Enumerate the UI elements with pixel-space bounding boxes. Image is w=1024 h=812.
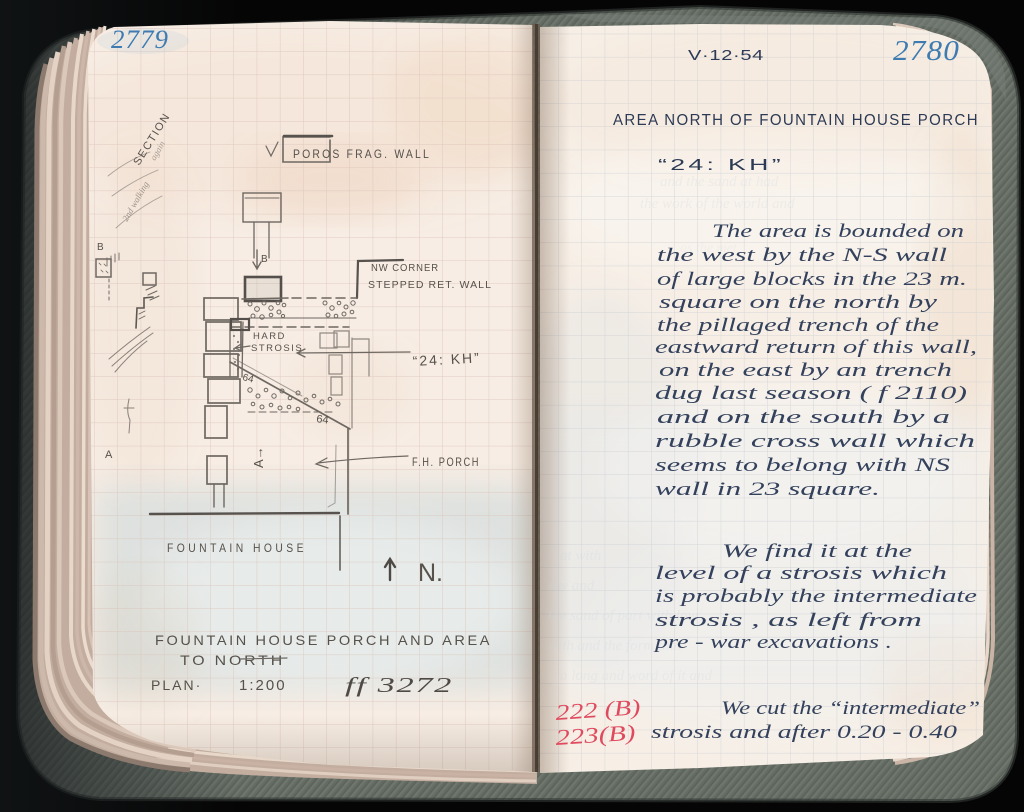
svg-text:AREA NORTH OF FOUNTAIN HOUSE P: AREA NORTH OF FOUNTAIN HOUSE PORCH [613,112,979,129]
svg-text:64: 64 [316,413,330,427]
svg-text:on the east by an trench: on the east by an trench [659,360,952,381]
svg-text:the west by the N-S wall: the west by the N-S wall [657,245,947,266]
svg-text:We find it at the: We find it at the [722,541,912,562]
svg-text:V·12·54: V·12·54 [688,47,764,64]
svg-text:“24: KH”: “24: KH” [658,157,784,174]
svg-text:A→: A→ [251,446,266,468]
svg-text:PLAN·: PLAN· [151,677,202,693]
svg-text:of large blocks in the 23 m.: of large blocks in the 23 m. [657,269,967,290]
svg-text:B: B [97,242,104,253]
svg-text:F.H. PORCH: F.H. PORCH [412,455,480,469]
svg-text:ff 3272: ff 3272 [345,673,453,697]
svg-text:pre - war excavations .: pre - war excavations . [652,632,892,653]
svg-text:We cut the “intermediate”: We cut the “intermediate” [721,698,980,719]
svg-text:rubble cross wall which: rubble cross wall which [655,431,975,452]
svg-text:strosis , as left from: strosis , as left from [655,610,922,631]
svg-text:seems to belong with NS: seems to belong with NS [655,455,951,476]
svg-text:B: B [261,254,268,265]
svg-text:2779: 2779 [111,25,169,54]
svg-text:the work of the world and: the work of the world and [640,196,795,212]
svg-text:eastward return of this wall,: eastward return of this wall, [655,337,977,358]
svg-text:and on the south by a: and on the south by a [657,407,950,428]
svg-text:FOUNTAIN HOUSE: FOUNTAIN HOUSE [167,541,307,555]
svg-text:NW CORNER: NW CORNER [371,263,439,274]
svg-text:1:200: 1:200 [239,677,287,694]
svg-text:TO NORTH: TO NORTH [180,652,285,668]
svg-text:dug last season ( f 2110): dug last season ( f 2110) [655,383,967,404]
svg-text:at with: at with [560,548,601,564]
svg-text:strosis and after 0.20 - 0.40: strosis and after 0.20 - 0.40 [651,722,958,743]
svg-text:wall in 23 square.: wall in 23 square. [655,479,880,500]
svg-text:A: A [105,449,113,461]
svg-text:square on the north by: square on the north by [659,292,938,313]
svg-text:and the sand at had: and the sand at had [660,174,779,190]
svg-text:say and: say and [548,578,595,594]
svg-text:POROS FRAG. WALL: POROS FRAG. WALL [293,147,431,161]
svg-text:N.: N. [418,559,443,587]
svg-text:level of a strosis which: level of a strosis which [655,563,947,584]
svg-text:a long and word of it and: a long and word of it and [560,668,712,684]
svg-text:the pillaged trench of the: the pillaged trench of the [657,315,939,336]
svg-text:is probably the intermediate: is probably the intermediate [655,586,977,607]
svg-text:FOUNTAIN HOUSE PORCH AND AREA: FOUNTAIN HOUSE PORCH AND AREA [155,632,492,648]
svg-text:HARD: HARD [253,331,286,342]
svg-text:STROSIS: STROSIS [251,343,303,354]
svg-text:STEPPED RET. WALL: STEPPED RET. WALL [368,280,492,291]
svg-text:2780: 2780 [893,36,960,67]
svg-text:The area is bounded on: The area is bounded on [712,221,964,242]
